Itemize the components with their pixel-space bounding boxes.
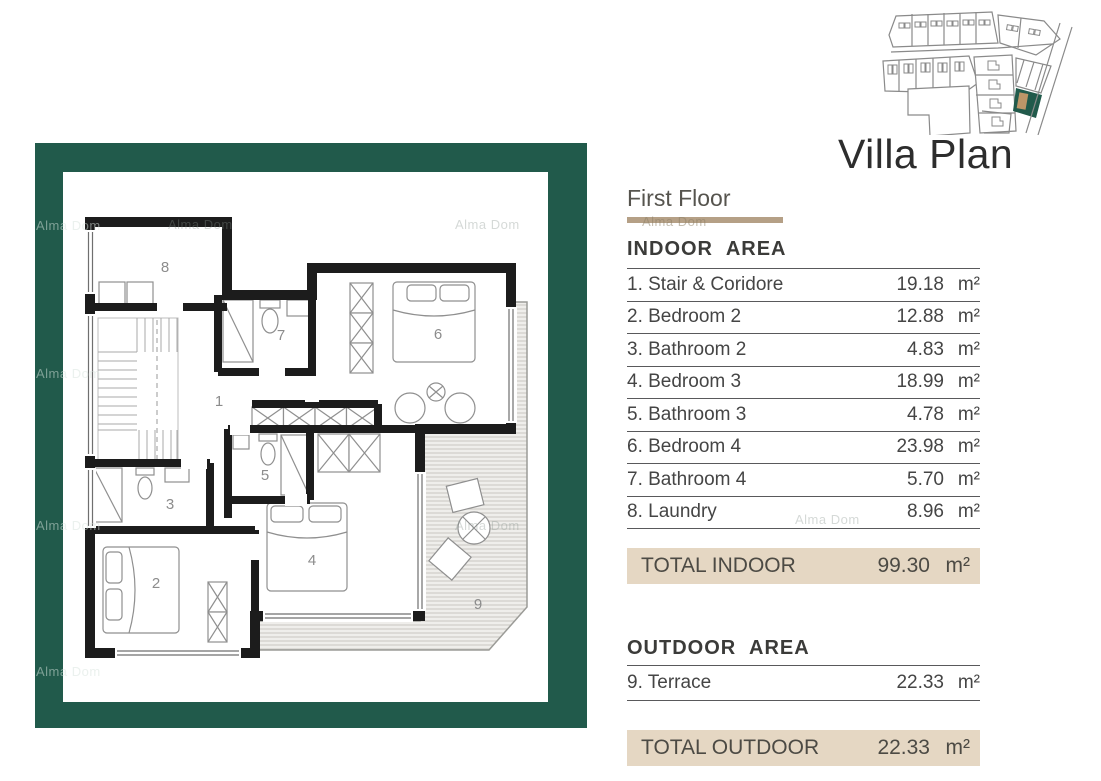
indoor-heading: INDOOR AREA — [627, 238, 786, 261]
table-row: 1. Stair & Coridore 19.18 m² — [627, 268, 980, 301]
total-outdoor-value: 22.33 — [852, 736, 930, 760]
table-row: 2. Bedroom 2 12.88 m² — [627, 301, 980, 334]
room-name: 6. Bedroom 4 — [627, 436, 874, 458]
total-outdoor-label: TOTAL OUTDOOR — [627, 736, 852, 760]
room-unit: m² — [944, 436, 980, 458]
room-area: 22.33 — [874, 672, 944, 694]
room-area: 4.83 — [874, 339, 944, 361]
room-area: 23.98 — [874, 436, 944, 458]
room-name: 1. Stair & Coridore — [627, 274, 874, 296]
room-unit: m² — [944, 672, 980, 694]
room-name: 3. Bathroom 2 — [627, 339, 874, 361]
table-row: 6. Bedroom 4 23.98 m² — [627, 431, 980, 464]
total-indoor-value: 99.30 — [852, 554, 930, 578]
room-number-2: 2 — [152, 575, 160, 592]
room-unit: m² — [944, 371, 980, 393]
villa-frame: 1 2 3 4 5 6 7 8 9 — [35, 143, 587, 728]
room-name: 8. Laundry — [627, 501, 874, 523]
room-unit: m² — [944, 501, 980, 523]
total-indoor-bar: TOTAL INDOOR 99.30 m² — [627, 548, 980, 584]
table-row: 8. Laundry 8.96 m² — [627, 496, 980, 529]
table-row: 7. Bathroom 4 5.70 m² — [627, 463, 980, 496]
room-unit: m² — [944, 404, 980, 426]
outdoor-heading: OUTDOOR AREA — [627, 637, 810, 660]
room-unit: m² — [944, 469, 980, 491]
room-name: 9. Terrace — [627, 672, 874, 694]
room-number-3: 3 — [166, 496, 174, 513]
room-number-6: 6 — [434, 326, 442, 343]
room-name: 4. Bedroom 3 — [627, 371, 874, 393]
floorplan-canvas: 1 2 3 4 5 6 7 8 9 — [63, 172, 548, 702]
room-number-4: 4 — [308, 552, 316, 569]
room-unit: m² — [944, 339, 980, 361]
total-outdoor-unit: m² — [930, 736, 980, 760]
room-number-8: 8 — [161, 259, 169, 276]
section-divider — [627, 217, 783, 223]
total-outdoor-bar: TOTAL OUTDOOR 22.33 m² — [627, 730, 980, 766]
floorplan-svg: 1 2 3 4 5 6 7 8 9 — [63, 172, 548, 702]
room-area: 12.88 — [874, 306, 944, 328]
room-area: 4.78 — [874, 404, 944, 426]
room-area: 19.18 — [874, 274, 944, 296]
room-name: 2. Bedroom 2 — [627, 306, 874, 328]
table-row: 5. Bathroom 3 4.78 m² — [627, 398, 980, 431]
room-unit: m² — [944, 306, 980, 328]
site-plan — [866, 3, 1098, 135]
room-number-1: 1 — [215, 393, 223, 410]
room-name: 7. Bathroom 4 — [627, 469, 874, 491]
room-area: 8.96 — [874, 501, 944, 523]
table-row: 3. Bathroom 2 4.83 m² — [627, 333, 980, 366]
room-number-7: 7 — [277, 327, 285, 344]
table-row: 4. Bedroom 3 18.99 m² — [627, 366, 980, 399]
total-indoor-label: TOTAL INDOOR — [627, 554, 852, 578]
room-number-5: 5 — [261, 467, 269, 484]
room-area: 18.99 — [874, 371, 944, 393]
indoor-table: 1. Stair & Coridore 19.18 m² 2. Bedroom … — [627, 268, 980, 529]
table-row: 9. Terrace 22.33 m² — [627, 665, 980, 700]
page-title: Villa Plan — [838, 131, 1013, 178]
room-area: 5.70 — [874, 469, 944, 491]
floor-label: First Floor — [627, 185, 731, 212]
room-unit: m² — [944, 274, 980, 296]
page: 1 2 3 4 5 6 7 8 9 — [0, 0, 1101, 781]
outdoor-table: 9. Terrace 22.33 m² — [627, 665, 980, 701]
total-indoor-unit: m² — [930, 554, 980, 578]
room-number-9: 9 — [474, 596, 482, 613]
room-name: 5. Bathroom 3 — [627, 404, 874, 426]
